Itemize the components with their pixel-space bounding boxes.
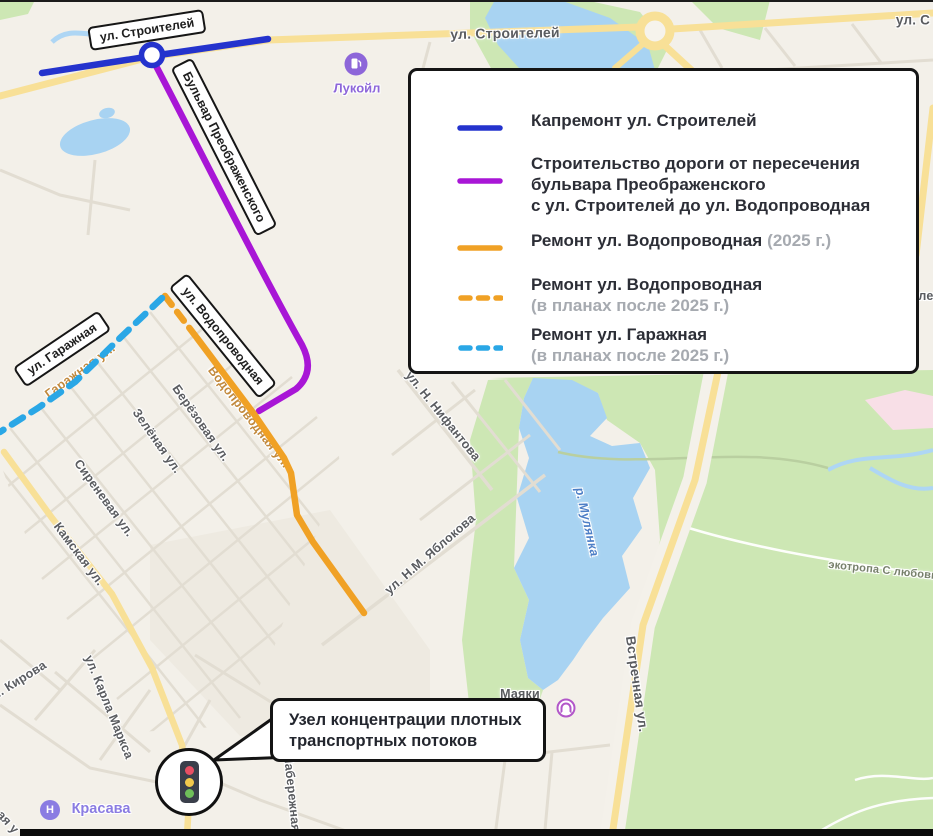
- legend-item-construction: Строительство дороги от пересечения буль…: [457, 153, 898, 216]
- legend-label-line3: с ул. Строителей до ул. Водопроводная: [531, 195, 870, 216]
- legend-label-line1: Строительство дороги от пересечения: [531, 153, 870, 174]
- legend-label-line2: бульвара Преображенского: [531, 174, 870, 195]
- legend-label: Ремонт ул. Водопроводная: [531, 231, 762, 250]
- legend-label: Капремонт ул. Строителей: [531, 111, 757, 130]
- legend-label: Ремонт ул. Гаражная: [531, 324, 729, 345]
- callout-traffic-node: Узел концентрации плотных транспортных п…: [270, 698, 546, 762]
- legend-item-remont-planned: Ремонт ул. Водопроводная (в планах после…: [457, 274, 898, 316]
- traffic-light-red: [185, 766, 194, 775]
- legend-item-remont-2025: Ремонт ул. Водопроводная(2025 г.): [457, 230, 898, 256]
- traffic-light-green: [185, 789, 194, 798]
- legend-label: Ремонт ул. Водопроводная: [531, 274, 762, 295]
- legend-panel: Капремонт ул. Строителей Строительство д…: [408, 68, 919, 374]
- traffic-light-icon: [180, 761, 199, 803]
- legend-swatch-lightblue-dashed: [457, 338, 503, 356]
- legend-swatch-orange-solid: [457, 238, 503, 256]
- map-canvas: ул. Строителей ул. С Берёзовая ул. Зелён…: [0, 0, 933, 836]
- legend-note: (2025 г.): [767, 231, 831, 250]
- callout-line1: Узел концентрации плотных: [289, 710, 527, 731]
- traffic-node-marker: [155, 748, 223, 816]
- legend-note: (в планах после 2025 г.): [531, 295, 762, 316]
- callout-line2: транспортных потоков: [289, 731, 527, 752]
- legend-note: (в планах после 2025 г.): [531, 345, 729, 366]
- legend-swatch-purple-solid: [457, 171, 503, 189]
- image-border-top: [0, 0, 933, 2]
- traffic-light-yellow: [185, 778, 194, 787]
- legend-swatch-orange-dashed: [457, 288, 503, 306]
- image-border-bottom: [20, 829, 933, 836]
- legend-item-kapremont: Капремонт ул. Строителей: [457, 110, 898, 136]
- legend-swatch-blue-solid: [457, 118, 503, 136]
- legend-item-garazhnaya: Ремонт ул. Гаражная (в планах после 2025…: [457, 324, 898, 366]
